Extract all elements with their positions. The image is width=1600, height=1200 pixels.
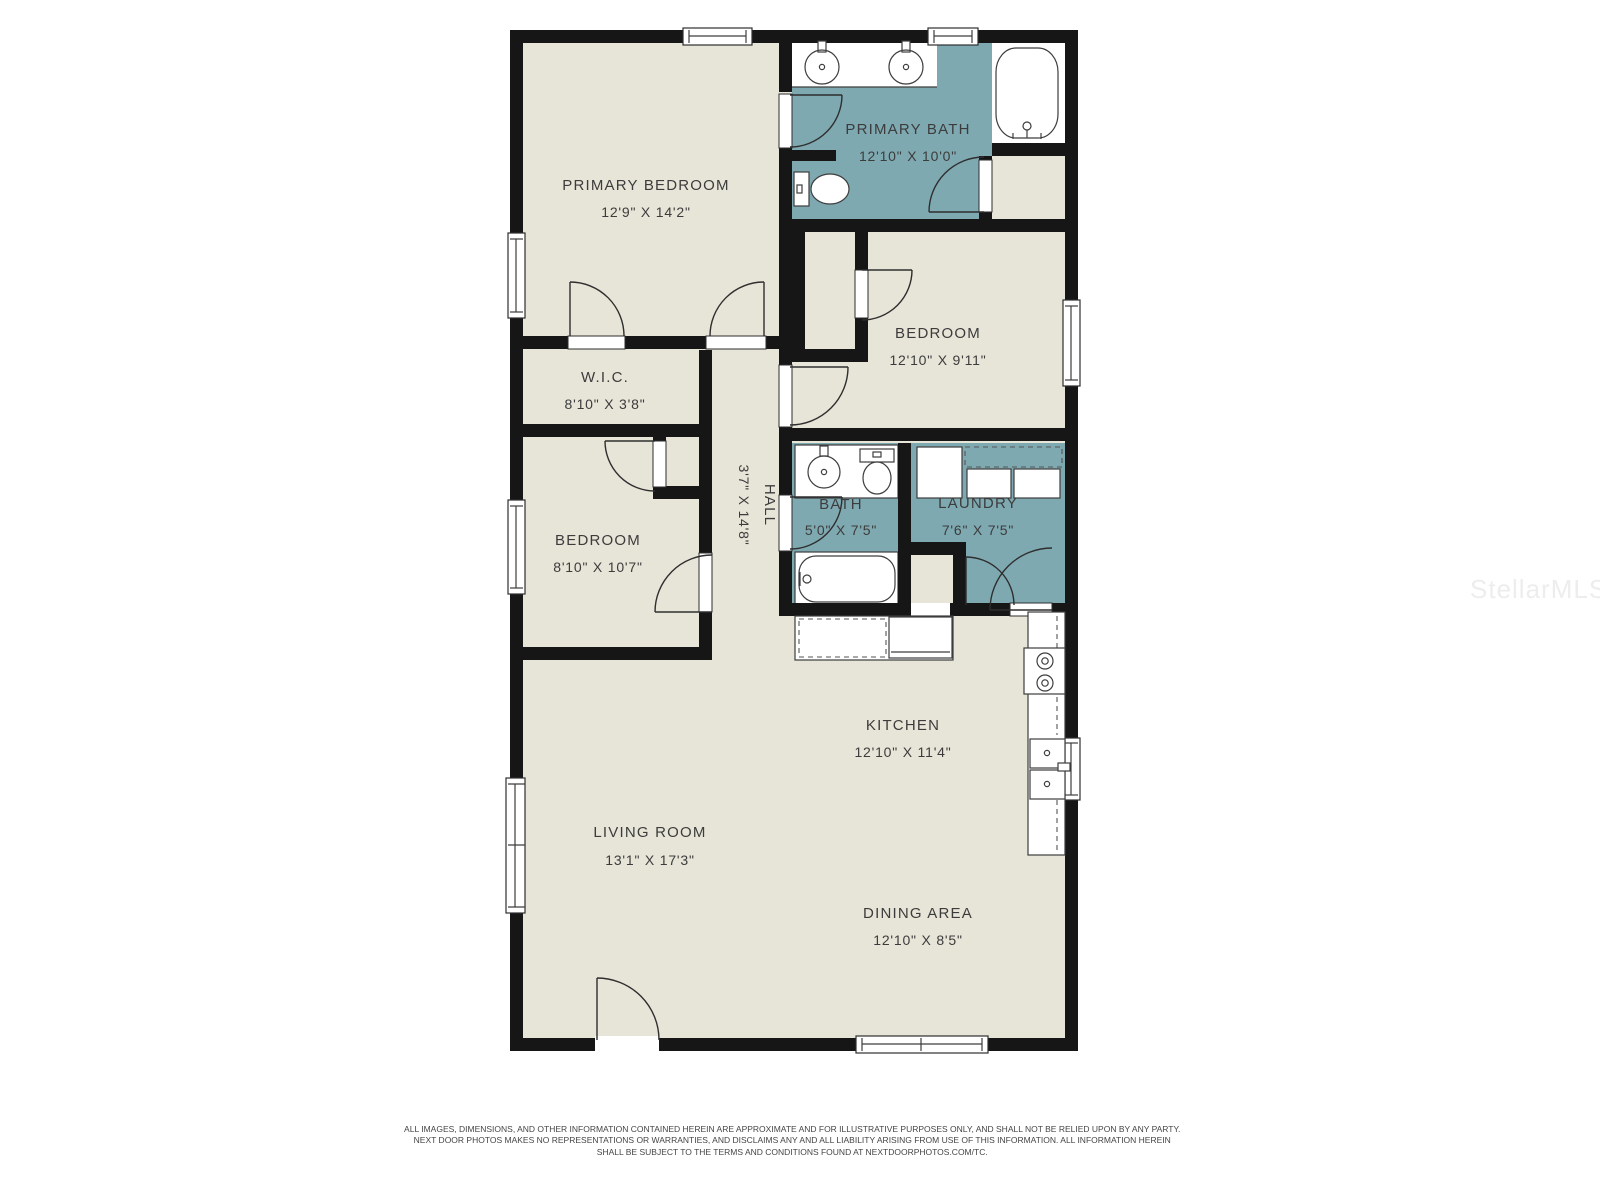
disclaimer-line-2: NEXT DOOR PHOTOS MAKES NO REPRESENTATION…	[404, 1135, 1180, 1146]
label-bath: BATH	[819, 496, 863, 513]
disclaimer-line-1: ALL IMAGES, DIMENSIONS, AND OTHER INFORM…	[404, 1124, 1180, 1135]
toilet-privacy-stub	[792, 150, 836, 161]
double-window	[506, 778, 525, 913]
linen-closet-door-slab	[979, 160, 992, 212]
label-wic: W.I.C.	[581, 369, 629, 386]
dims-bedroom-ne: 12'10" X 9'11"	[889, 352, 986, 368]
label-bedroom-mid: BEDROOM	[555, 532, 641, 549]
label-primary-bedroom: PRIMARY BEDROOM	[562, 177, 729, 194]
label-dining-area: DINING AREA	[863, 905, 973, 922]
ne-closet-door-slab	[855, 270, 868, 318]
dims-hall: 3'7" X 14'8"	[736, 465, 752, 546]
toilet-icon	[860, 449, 894, 494]
label-laundry: LAUNDRY	[938, 495, 1018, 512]
dims-kitchen: 12'10" X 11'4"	[854, 744, 951, 760]
dims-primary-bath: 12'10" X 10'0"	[859, 148, 957, 164]
window	[1063, 300, 1080, 386]
label-bedroom-ne: BEDROOM	[895, 325, 981, 342]
bath-door-slab	[779, 495, 792, 551]
primary-bedroom-door-slab	[706, 336, 766, 349]
wic-door-slab	[568, 336, 625, 349]
mid-closet-door-slab	[653, 441, 666, 487]
closet-opening	[911, 603, 950, 616]
disclaimer-text: ALL IMAGES, DIMENSIONS, AND OTHER INFORM…	[404, 1124, 1180, 1158]
label-kitchen: KITCHEN	[866, 717, 940, 734]
floor-plan: PRIMARY BEDROOM 12'9" X 14'2" PRIMARY BA…	[0, 0, 1600, 1200]
dims-bath: 5'0" X 7'5"	[805, 522, 877, 538]
floor-plan-page: PRIMARY BEDROOM 12'9" X 14'2" PRIMARY BA…	[0, 0, 1600, 1200]
primary-bath-vanity-counter	[792, 43, 937, 87]
label-hall: HALL	[761, 484, 778, 526]
primary-bath-door-slab	[779, 94, 792, 148]
dims-primary-bedroom: 12'9" X 14'2"	[601, 204, 691, 220]
toilet-icon	[794, 172, 849, 206]
disclaimer-line-3: SHALL BE SUBJECT TO THE TERMS AND CONDIT…	[404, 1147, 1180, 1158]
double-window	[856, 1036, 988, 1053]
stove-icon	[1024, 648, 1065, 694]
floor-laundry-closet	[911, 555, 953, 603]
utility-closet	[917, 447, 962, 498]
mid-bedroom-door-slab	[699, 553, 712, 612]
dims-dining-area: 12'10" X 8'5"	[873, 932, 963, 948]
ne-bedroom-door-slab	[779, 365, 792, 427]
dims-laundry: 7'6" X 7'5"	[942, 522, 1014, 538]
window	[928, 28, 978, 45]
stellar-mls-watermark: StellarMLS	[1470, 574, 1600, 605]
washer-icon	[967, 469, 1011, 498]
dims-wic: 8'10" X 3'8"	[565, 396, 646, 412]
window	[508, 233, 525, 318]
kitchen-counter-right	[1024, 612, 1070, 855]
kitchen-counter-top	[795, 616, 953, 660]
window	[508, 500, 525, 594]
dryer-icon	[1014, 469, 1060, 498]
front-door-opening	[595, 1036, 659, 1053]
label-living-room: LIVING ROOM	[593, 824, 706, 841]
dims-bedroom-mid: 8'10" X 10'7"	[553, 559, 643, 575]
label-primary-bath: PRIMARY BATH	[845, 121, 970, 138]
window	[683, 28, 752, 45]
dims-living-room: 13'1" X 17'3"	[605, 852, 695, 868]
